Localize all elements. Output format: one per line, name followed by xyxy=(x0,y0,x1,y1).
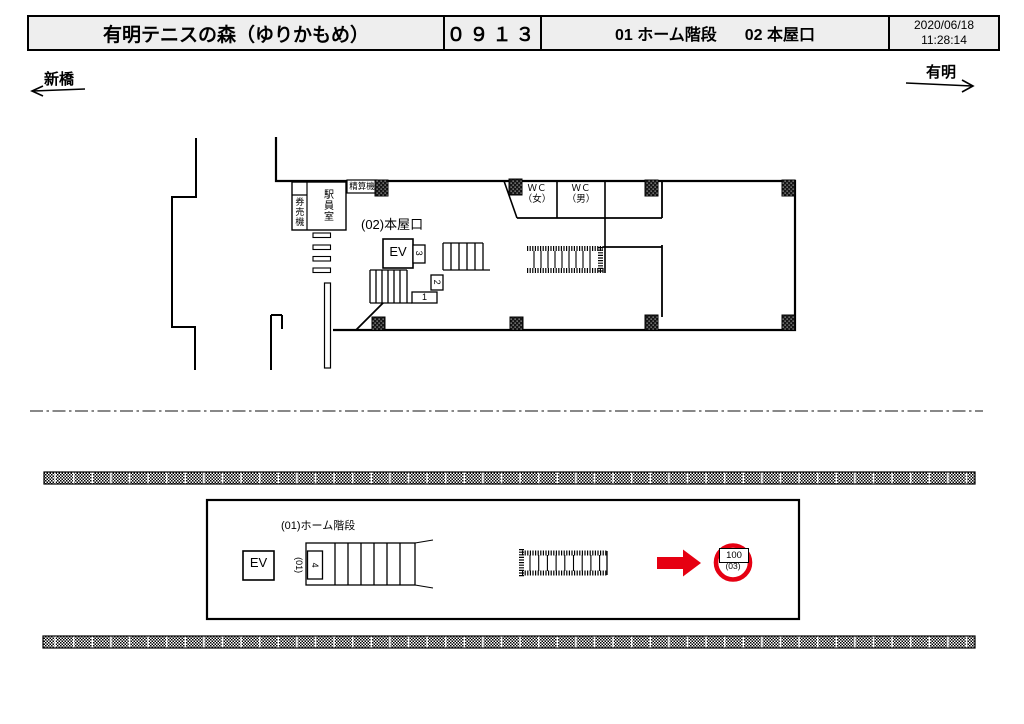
track-strip-north xyxy=(44,472,975,484)
concourse-elevator-label: EV xyxy=(383,245,413,260)
station-map-page: { "header": { "station_name": "有明テニスの森（ゆ… xyxy=(0,0,1024,724)
platform-stair-ref-label: (01) xyxy=(294,550,304,580)
platform-stair-label: (01)ホーム階段 xyxy=(281,520,355,533)
stair-section-1-label: 1 xyxy=(412,292,437,302)
concourse-exit-label: (02)本屋口 xyxy=(361,218,423,233)
direction-left-arrow xyxy=(32,86,85,96)
stair-section-4-label: 4 xyxy=(310,551,320,579)
marker-ref-label: (03) xyxy=(719,562,747,572)
wc-men-label: ＷＣ （男） xyxy=(559,184,603,206)
wc-women-label: ＷＣ （女） xyxy=(518,184,556,206)
fare-adjustment-label: 精算機 xyxy=(348,182,376,192)
concourse-plan xyxy=(172,137,795,370)
platform-plan xyxy=(30,411,983,648)
concourse-down-stair xyxy=(527,247,605,273)
direction-right-arrow xyxy=(906,80,973,92)
stair-section-3-label: 3 xyxy=(414,247,424,259)
ticket-machine-label: 券売機 xyxy=(294,197,304,227)
ticket-gates xyxy=(313,233,331,273)
staff-room-label: 駅員室 xyxy=(321,189,333,222)
floor-plan-svg xyxy=(0,0,1024,724)
track-strip-south xyxy=(43,636,975,648)
stair-section-2-label: 2 xyxy=(432,276,442,288)
platform-elevator-label: EV xyxy=(243,556,274,571)
